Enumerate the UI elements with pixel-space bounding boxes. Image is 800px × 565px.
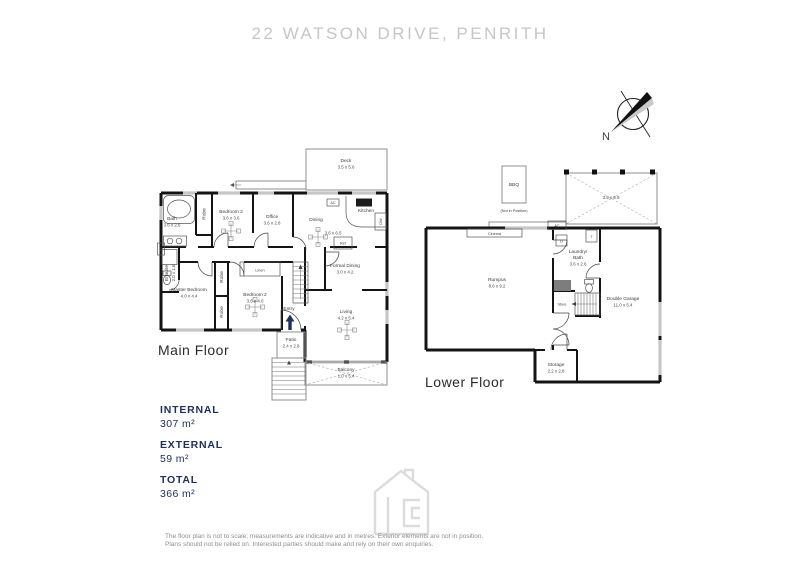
room-office: Office	[266, 214, 279, 220]
bbq-label: BBQ	[509, 182, 519, 188]
main-floor-label: Main Floor	[158, 342, 229, 358]
area-summary: INTERNAL 307 m² EXTERNAL 59 m² TOTAL 366…	[160, 404, 223, 509]
external-area-value: 59 m²	[160, 453, 223, 465]
room-laundry-line2: Bath	[573, 255, 583, 261]
room-laundry-line1: Laundry/	[569, 249, 588, 255]
room-storage-dim: 2.2 x 2.8	[548, 369, 565, 374]
room-patio-dim: 2.4 x 2.8	[283, 344, 300, 349]
toilet-icon-lower	[585, 280, 594, 293]
ac-lower-label: AC	[554, 224, 560, 228]
deck-landing	[236, 181, 306, 189]
room-dining-dim: 3.6 x 6.5	[325, 231, 342, 236]
disclaimer-line-1: The floor plan is not to scale; measurem…	[165, 533, 635, 541]
floor-plan-page: 22 WATSON DRIVE, PENRITH N Deck 3.5 x 5.…	[0, 0, 800, 565]
entry-arrow-icon	[286, 315, 295, 331]
robe-3-label: Robe	[219, 306, 225, 318]
room-balcony-dim: 1.0 x 5.4	[338, 374, 355, 379]
stove-icon	[356, 199, 372, 207]
room-rumpus-dim: 8.6 x 9.2	[489, 284, 506, 289]
lower-floor-label: Lower Floor	[425, 374, 504, 390]
disclaimer: The floor plan is not to scale; measurem…	[165, 533, 635, 549]
internal-area-value: 307 m²	[160, 418, 223, 430]
room-dining: Dining	[309, 217, 323, 223]
bbq-note: (Not in Position)	[500, 209, 528, 213]
ceiling-fan-icon	[222, 222, 241, 241]
interior-walls	[161, 193, 387, 330]
room-master: Master Bedroom	[171, 287, 206, 293]
room-bedroom3: Bedroom 3	[219, 209, 243, 215]
room-storage: Storage	[548, 362, 565, 368]
room-garage-dim: 11.0 x 5.4	[614, 303, 634, 308]
room-formal-dining-dim: 3.0 x 4.2	[337, 270, 354, 275]
room-ensuite-dim: 2.0 x 1.6	[171, 264, 176, 281]
room-rumpus: Rumpus	[488, 277, 506, 283]
total-area-value: 366 m²	[160, 488, 223, 500]
exterior-staircase	[272, 358, 306, 400]
compass-north-label: N	[602, 131, 610, 143]
room-office-dim: 3.6 x 2.8	[264, 221, 281, 226]
compass-icon: N	[595, 85, 665, 145]
room-living: Living	[340, 309, 353, 315]
room-kitchen: Kitchen	[358, 208, 374, 214]
robe-2-label: Robe	[219, 271, 225, 283]
internal-area-label: INTERNAL	[160, 404, 223, 416]
room-deck-dim: 3.5 x 5.6	[338, 165, 355, 170]
page-title: 22 WATSON DRIVE, PENRITH	[0, 24, 800, 44]
disclaimer-line-2: Plans should not be relied on. Intereste…	[165, 541, 635, 549]
room-master-dim: 4.0 x 4.4	[181, 294, 198, 299]
bath-vanity-icon	[164, 236, 187, 246]
external-area-label: EXTERNAL	[160, 439, 223, 451]
pergola-dim: 3.5 x 8.9	[603, 195, 620, 200]
room-bedroom2: Bedroom 2	[243, 292, 267, 298]
robe-1-label: Robe	[202, 208, 208, 220]
lower-floor-plan: BBQ (Not in Position) 3.5 x 8.9 Cinema A…	[420, 160, 665, 395]
room-bedroom3-dim: 3.6 x 3.6	[223, 216, 240, 221]
room-bath: Bath	[167, 216, 177, 222]
store-label: Store	[557, 303, 566, 307]
room-ensuite: Ensuite	[164, 265, 170, 281]
room-bedroom2-dim: 3.6 x 4.0	[247, 299, 264, 304]
cinema-label: Cinema	[488, 232, 502, 236]
laundry-cabinet	[554, 280, 571, 291]
deck-outline	[306, 149, 387, 190]
ac-left-label: AC	[160, 246, 164, 252]
deck-step-arrow-tip	[230, 183, 234, 187]
lower-staircase	[572, 293, 601, 315]
room-patio: Patio	[286, 337, 297, 343]
tub-label: T	[590, 235, 593, 239]
room-laundry-dim: 3.6 x 2.6	[570, 262, 587, 267]
linen-label: Linen	[255, 269, 264, 273]
room-living-dim: 4.2 x 5.4	[338, 316, 355, 321]
ceiling-fan-icon	[338, 321, 357, 340]
house-logo	[365, 462, 440, 542]
entry-label: Entry	[283, 306, 295, 312]
room-formal-dining: Formal Dining	[330, 263, 360, 269]
total-area-label: TOTAL	[160, 474, 223, 486]
room-bath-dim: 3.6 x 2.6	[164, 223, 181, 228]
dishwasher-label: DW	[379, 218, 383, 225]
room-garage: Double Garage	[607, 296, 640, 302]
room-balcony: Balcony	[337, 367, 355, 373]
ac-top-label: AC	[330, 201, 336, 205]
main-floor-plan: Deck 3.5 x 5.6 Linen	[150, 135, 415, 405]
room-deck: Deck	[341, 158, 353, 164]
fridge-label: Ref	[340, 242, 347, 246]
